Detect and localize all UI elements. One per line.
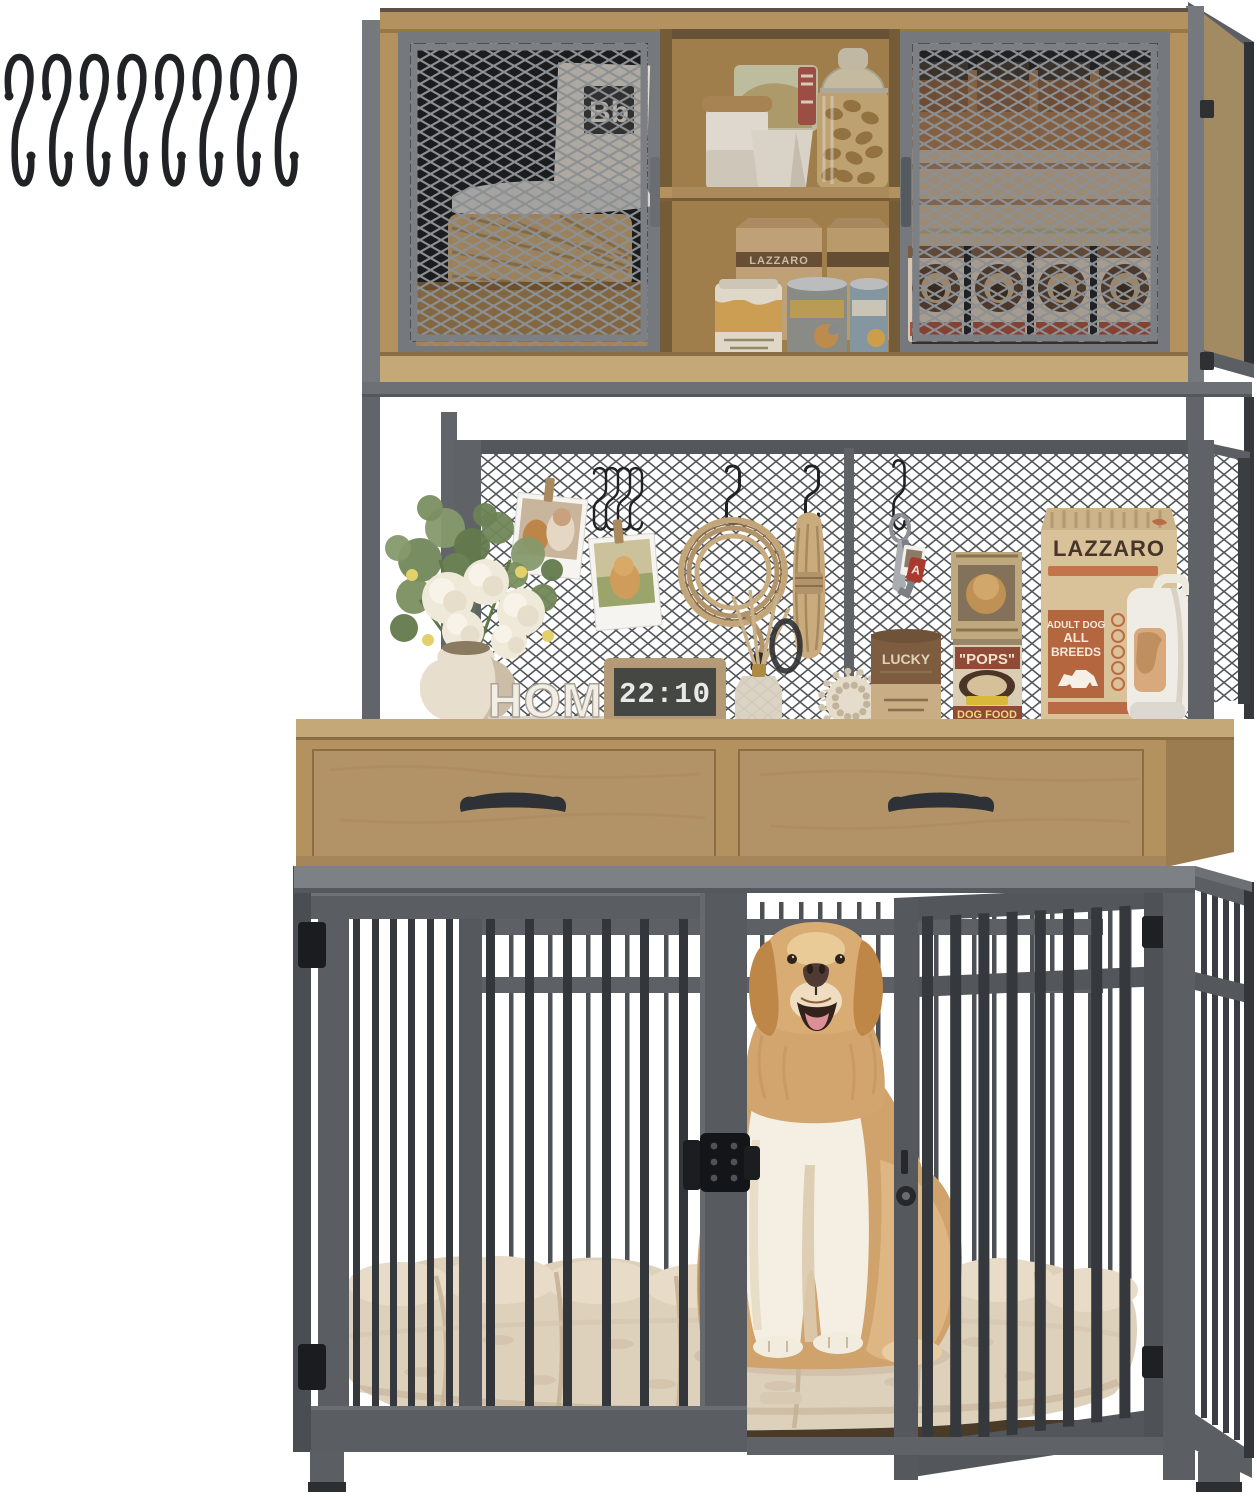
- svg-text:BREEDS: BREEDS: [1051, 645, 1101, 659]
- svg-text:22:10: 22:10: [619, 678, 711, 711]
- svg-text:LUCKY: LUCKY: [882, 651, 931, 667]
- svg-text:"POPS": "POPS": [959, 651, 1015, 668]
- svg-text:ALL: ALL: [1063, 630, 1088, 645]
- svg-text:LAZZARO: LAZZARO: [1053, 536, 1165, 561]
